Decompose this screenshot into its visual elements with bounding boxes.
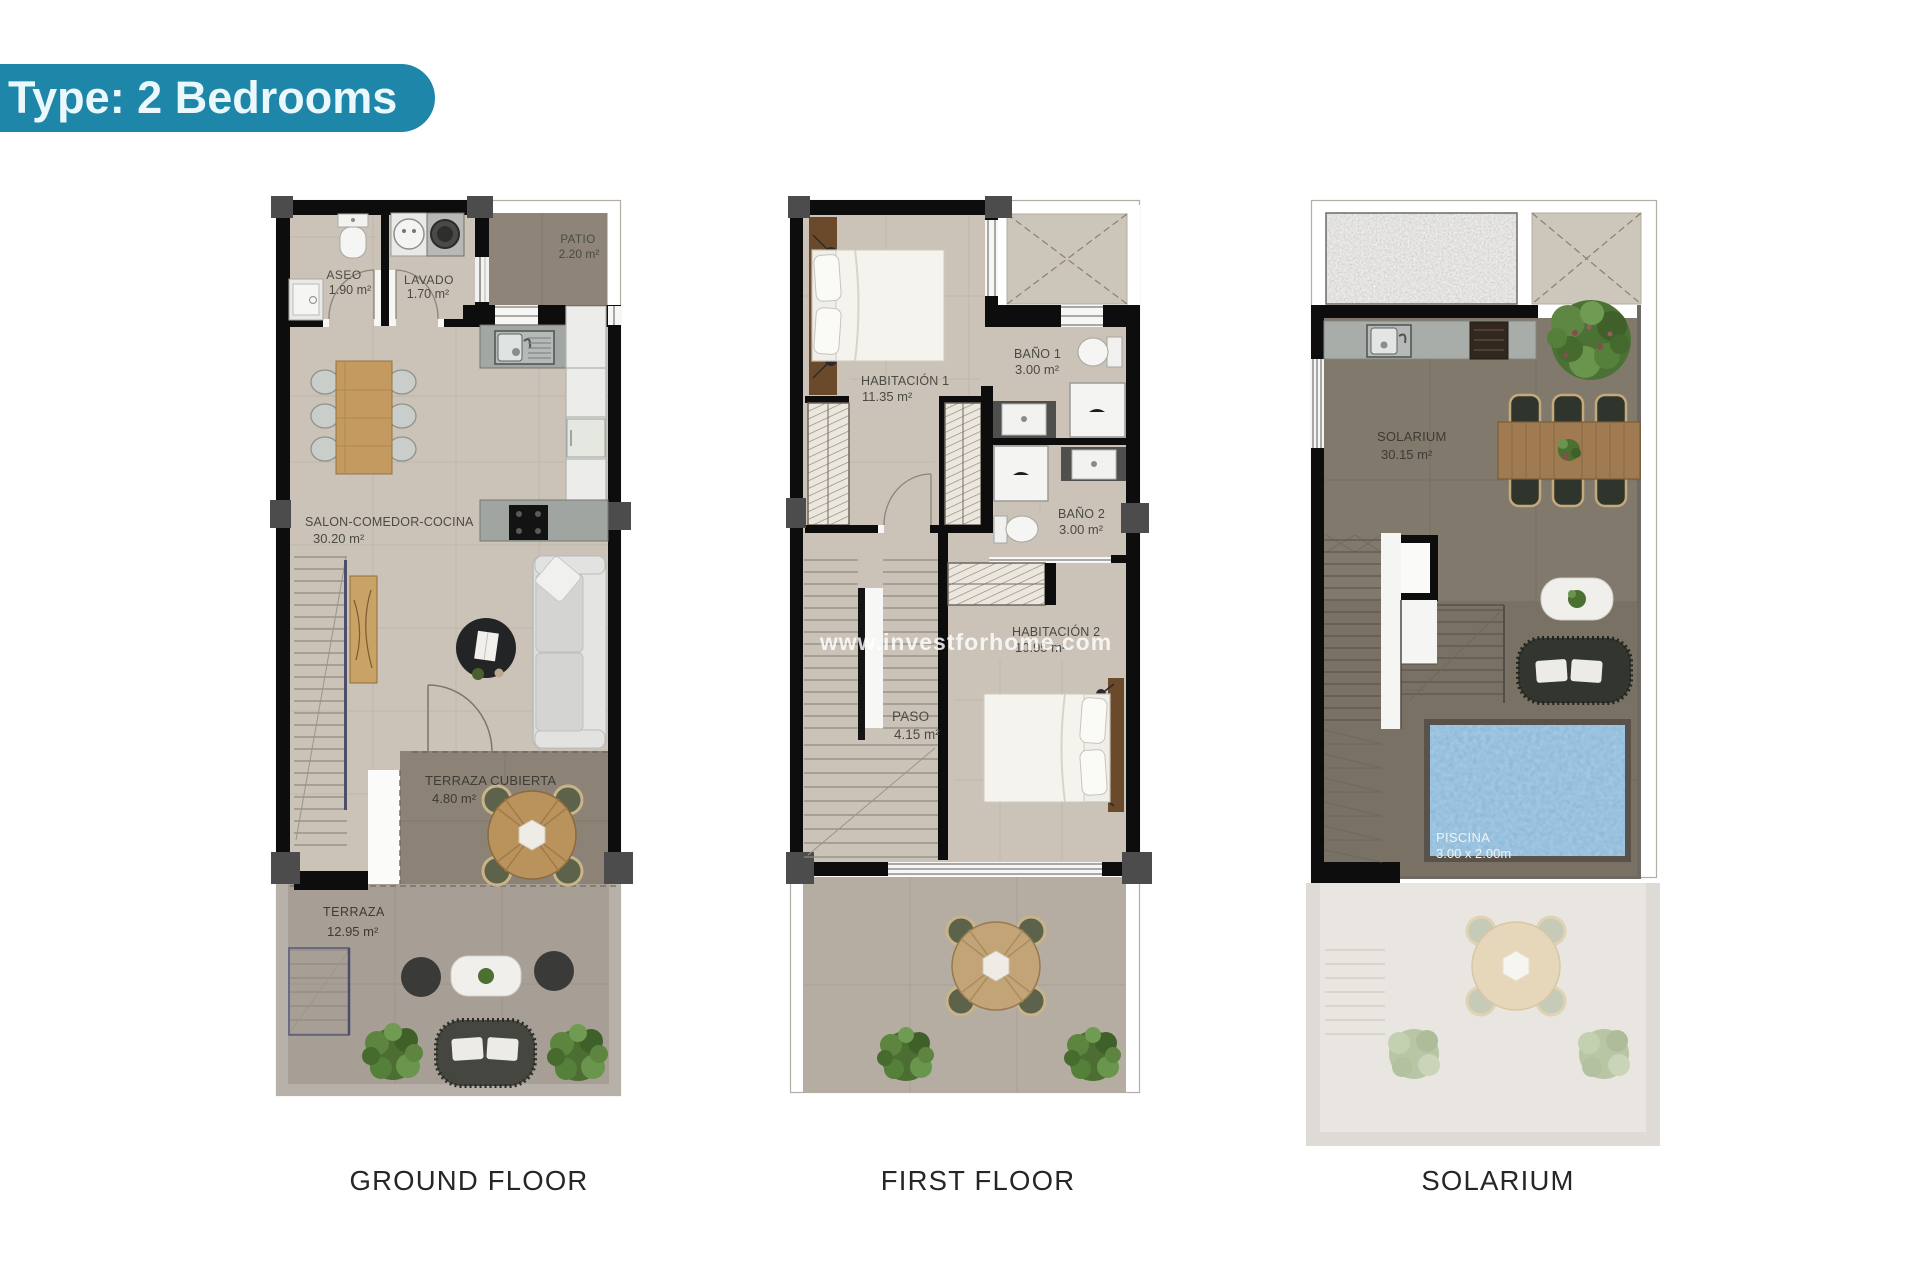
svg-text:TERRAZA CUBIERTA: TERRAZA CUBIERTA — [425, 773, 556, 788]
svg-text:12.95 m²: 12.95 m² — [327, 924, 379, 939]
svg-text:www.investforhome.com: www.investforhome.com — [819, 629, 1112, 655]
svg-text:GROUND FLOOR: GROUND FLOOR — [350, 1165, 589, 1196]
svg-text:11.35 m²: 11.35 m² — [862, 389, 913, 404]
svg-text:TERRAZA: TERRAZA — [323, 905, 385, 919]
svg-text:2.20 m²: 2.20 m² — [559, 247, 600, 261]
svg-text:4.80 m²: 4.80 m² — [432, 791, 477, 806]
svg-text:SOLARIUM: SOLARIUM — [1421, 1165, 1574, 1196]
svg-text:PISCINA: PISCINA — [1436, 830, 1490, 845]
svg-text:PATIO: PATIO — [560, 234, 595, 246]
svg-text:SOLARIUM: SOLARIUM — [1377, 429, 1447, 444]
svg-text:SALON-COMEDOR-COCINA: SALON-COMEDOR-COCINA — [305, 515, 474, 529]
svg-text:Type: 2 Bedrooms: Type: 2 Bedrooms — [8, 72, 397, 123]
svg-text:FIRST FLOOR: FIRST FLOOR — [881, 1165, 1076, 1196]
svg-text:BAÑO 1: BAÑO 1 — [1014, 347, 1061, 361]
svg-text:PASO: PASO — [892, 709, 929, 724]
svg-text:1.70 m²: 1.70 m² — [407, 287, 449, 301]
svg-text:4.15 m²: 4.15 m² — [894, 727, 940, 742]
svg-text:LAVADO: LAVADO — [404, 273, 454, 287]
svg-text:BAÑO 2: BAÑO 2 — [1058, 507, 1105, 521]
svg-text:3.00 m²: 3.00 m² — [1015, 362, 1060, 377]
svg-text:ASEO: ASEO — [326, 268, 361, 282]
svg-text:3.00 m²: 3.00 m² — [1059, 522, 1104, 537]
svg-text:1.90 m²: 1.90 m² — [329, 283, 371, 297]
svg-text:3.00 x 2.00m: 3.00 x 2.00m — [1436, 846, 1511, 861]
svg-text:HABITACIÓN 1: HABITACIÓN 1 — [861, 373, 949, 388]
svg-text:30.20 m²: 30.20 m² — [313, 531, 365, 546]
svg-text:30.15 m²: 30.15 m² — [1381, 447, 1433, 462]
